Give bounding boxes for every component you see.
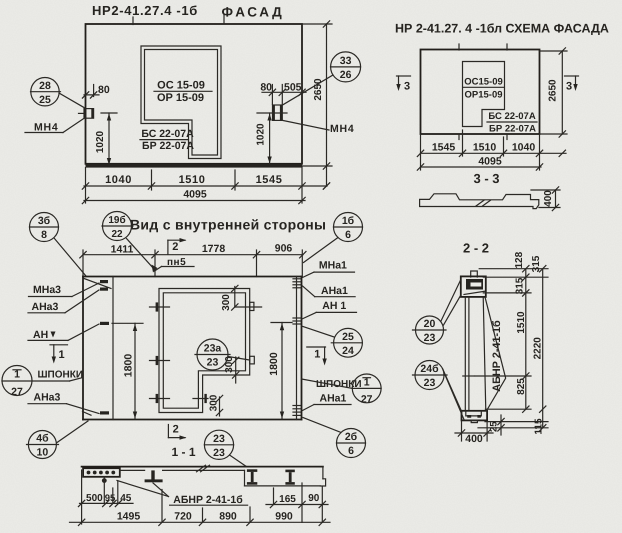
- svg-text:АНа3: АНа3: [34, 392, 61, 404]
- svg-text:1510: 1510: [473, 142, 497, 154]
- svg-text:24: 24: [342, 345, 354, 357]
- svg-text:23: 23: [213, 433, 225, 445]
- svg-text:1411: 1411: [111, 243, 134, 255]
- svg-text:23: 23: [213, 447, 225, 459]
- svg-text:19б: 19б: [108, 215, 125, 226]
- svg-text:2650: 2650: [548, 79, 559, 102]
- svg-text:90: 90: [308, 493, 320, 504]
- svg-text:6: 6: [348, 445, 354, 457]
- svg-text:АНа3: АНа3: [32, 301, 59, 313]
- svg-text:1: 1: [314, 349, 320, 361]
- svg-text:2 - 2: 2 - 2: [463, 241, 489, 256]
- svg-text:ОР15-09: ОР15-09: [464, 90, 502, 101]
- svg-text:ОС 15-09: ОС 15-09: [157, 80, 205, 92]
- svg-text:1800: 1800: [122, 354, 134, 378]
- svg-text:27: 27: [361, 394, 373, 406]
- svg-text:23: 23: [207, 357, 219, 369]
- svg-text:400: 400: [465, 433, 483, 445]
- svg-text:1 - 1: 1 - 1: [171, 445, 195, 459]
- svg-text:10: 10: [37, 447, 49, 459]
- svg-text:22: 22: [111, 229, 123, 240]
- svg-text:24б: 24б: [420, 363, 439, 375]
- svg-text:300: 300: [224, 356, 235, 373]
- svg-text:80: 80: [260, 82, 272, 94]
- svg-text:АБНР 2-41-1б: АБНР 2-41-1б: [173, 494, 243, 506]
- svg-text:1778: 1778: [202, 243, 226, 255]
- svg-text:1800: 1800: [268, 352, 280, 376]
- svg-text:2б: 2б: [345, 431, 358, 443]
- svg-text:АН: АН: [33, 329, 48, 341]
- svg-text:БР 22-07А: БР 22-07А: [489, 124, 536, 135]
- svg-text:26: 26: [340, 69, 352, 81]
- svg-text:1510: 1510: [516, 311, 527, 334]
- svg-text:6: 6: [345, 229, 351, 241]
- svg-text:1020: 1020: [256, 123, 267, 146]
- svg-text:3: 3: [566, 81, 572, 93]
- svg-text:315: 315: [514, 277, 525, 294]
- svg-text:20: 20: [424, 318, 436, 330]
- svg-text:23а: 23а: [204, 343, 222, 355]
- svg-text:500: 500: [86, 493, 103, 504]
- svg-text:128: 128: [514, 251, 525, 268]
- svg-text:3 - 3: 3 - 3: [473, 171, 499, 186]
- svg-text:990: 990: [275, 510, 293, 522]
- svg-text:1545: 1545: [256, 174, 283, 186]
- svg-text:115: 115: [534, 418, 545, 435]
- svg-text:1: 1: [58, 349, 64, 361]
- svg-text:БС 22-07А: БС 22-07А: [488, 111, 536, 122]
- svg-text:45: 45: [120, 493, 132, 504]
- svg-text:906: 906: [275, 242, 293, 254]
- svg-text:3б: 3б: [38, 215, 51, 227]
- svg-text:МН4: МН4: [330, 123, 355, 135]
- svg-text:80: 80: [98, 84, 110, 96]
- svg-text:1040: 1040: [105, 174, 132, 186]
- svg-text:АН 1: АН 1: [322, 300, 346, 312]
- svg-text:4б: 4б: [36, 433, 49, 445]
- svg-text:АНа1: АНа1: [320, 393, 347, 405]
- svg-text:825: 825: [516, 378, 527, 395]
- svg-text:АБНР 2-41-1б: АБНР 2-41-1б: [491, 320, 503, 392]
- svg-text:720: 720: [174, 510, 192, 522]
- svg-text:4095: 4095: [183, 189, 207, 201]
- svg-text:315: 315: [531, 255, 542, 272]
- svg-text:БР 22-07А: БР 22-07А: [142, 140, 194, 152]
- svg-text:23: 23: [424, 377, 436, 389]
- svg-text:4095: 4095: [478, 155, 502, 167]
- svg-text:28: 28: [39, 80, 51, 92]
- svg-text:БС 22-07А: БС 22-07А: [141, 128, 194, 140]
- svg-text:1040: 1040: [512, 142, 536, 154]
- svg-text:1б: 1б: [342, 215, 355, 227]
- svg-text:МНа1: МНа1: [319, 260, 347, 272]
- svg-text:1495: 1495: [117, 510, 141, 522]
- svg-text:27: 27: [11, 386, 23, 398]
- svg-text:2: 2: [173, 423, 179, 435]
- svg-text:95: 95: [105, 493, 116, 504]
- svg-text:23: 23: [424, 332, 436, 344]
- svg-text:Вид с внутренней стороны: Вид с внутренней стороны: [130, 217, 326, 233]
- svg-text:НР2-41.27.4 -1б: НР2-41.27.4 -1б: [92, 3, 198, 18]
- svg-text:3: 3: [404, 81, 410, 93]
- svg-text:33: 33: [340, 55, 352, 67]
- svg-text:1020: 1020: [95, 130, 106, 153]
- svg-text:25: 25: [39, 94, 51, 106]
- svg-text:ОР 15-09: ОР 15-09: [157, 92, 204, 104]
- svg-text:2220: 2220: [533, 337, 544, 360]
- svg-text:165: 165: [279, 494, 296, 505]
- svg-text:ФАСАД: ФАСАД: [222, 5, 285, 20]
- svg-text:ОС15-09: ОС15-09: [464, 76, 503, 87]
- svg-text:НР 2-41.27. 4 -1бл СХЕМА ФАСАД: НР 2-41.27. 4 -1бл СХЕМА ФАСАДА: [395, 22, 609, 36]
- svg-text:505: 505: [284, 82, 302, 94]
- svg-text:АНа1: АНа1: [321, 285, 348, 297]
- svg-text:МНа3: МНа3: [33, 284, 61, 296]
- svg-text:300: 300: [221, 294, 232, 311]
- svg-text:МН4: МН4: [34, 122, 59, 134]
- svg-text:300: 300: [208, 394, 219, 411]
- svg-text:25: 25: [342, 331, 354, 343]
- svg-text:1510: 1510: [179, 174, 206, 186]
- svg-text:2: 2: [172, 241, 178, 253]
- svg-text:890: 890: [219, 510, 237, 522]
- svg-text:1545: 1545: [432, 142, 456, 154]
- svg-text:8: 8: [41, 229, 47, 241]
- svg-text:400: 400: [543, 190, 554, 207]
